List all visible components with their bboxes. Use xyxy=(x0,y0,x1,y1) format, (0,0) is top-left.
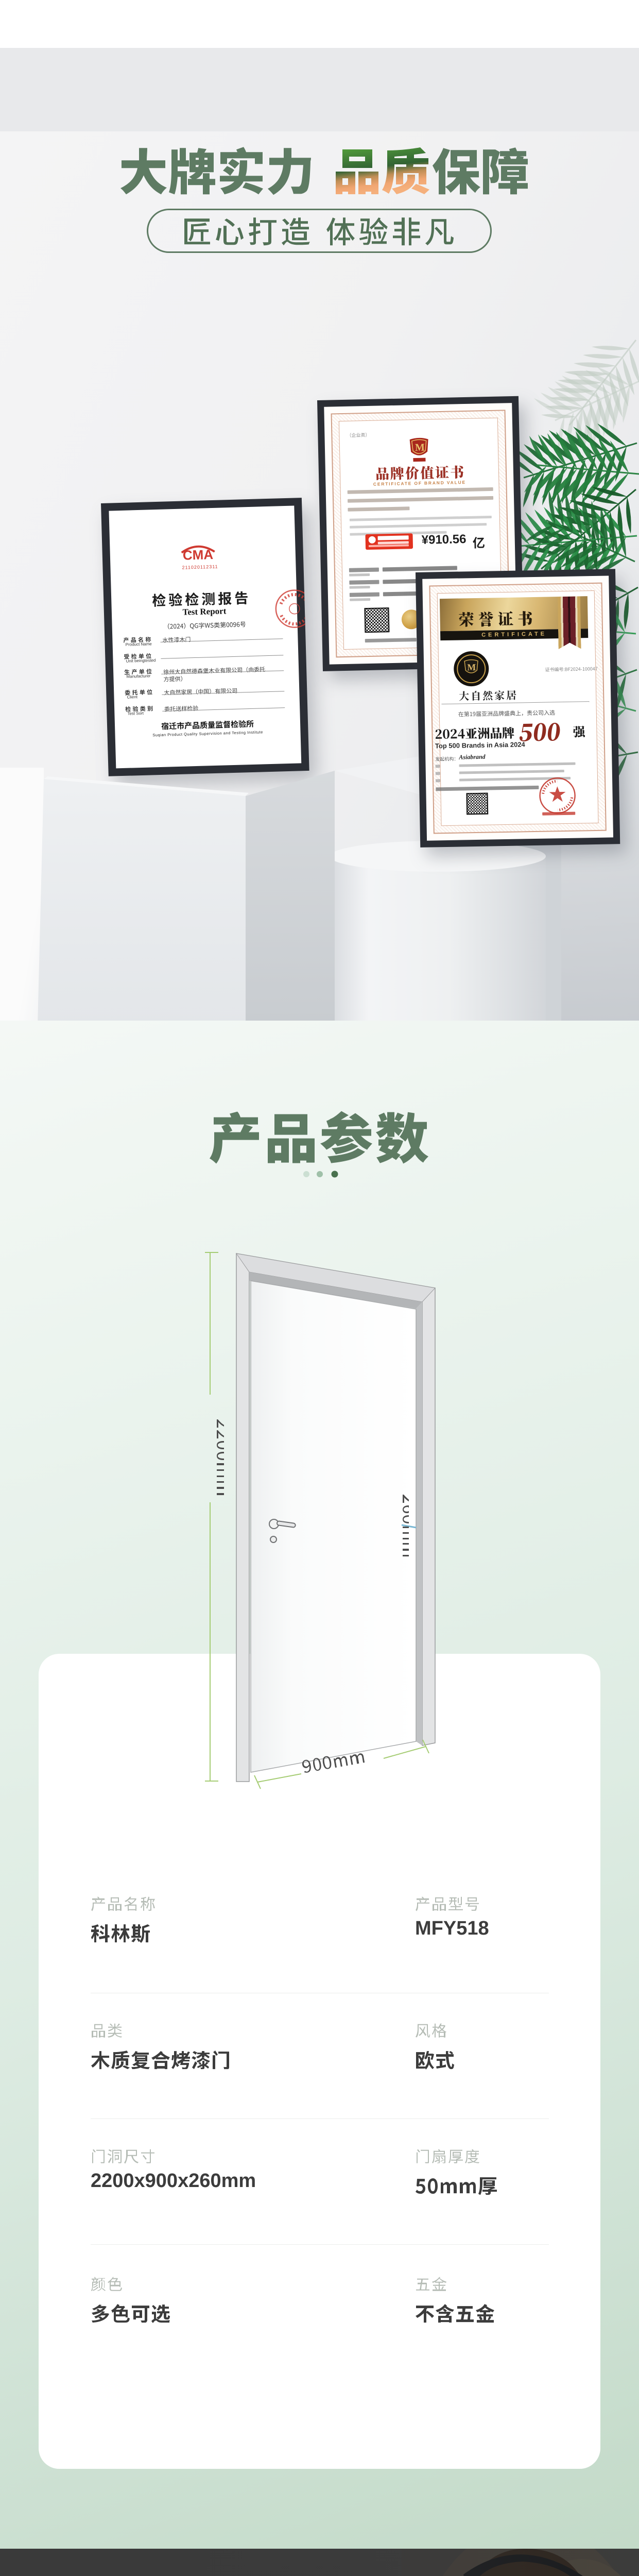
svg-text:M: M xyxy=(415,442,425,453)
svg-text:M: M xyxy=(467,662,476,672)
svg-text:CMA: CMA xyxy=(182,547,213,563)
